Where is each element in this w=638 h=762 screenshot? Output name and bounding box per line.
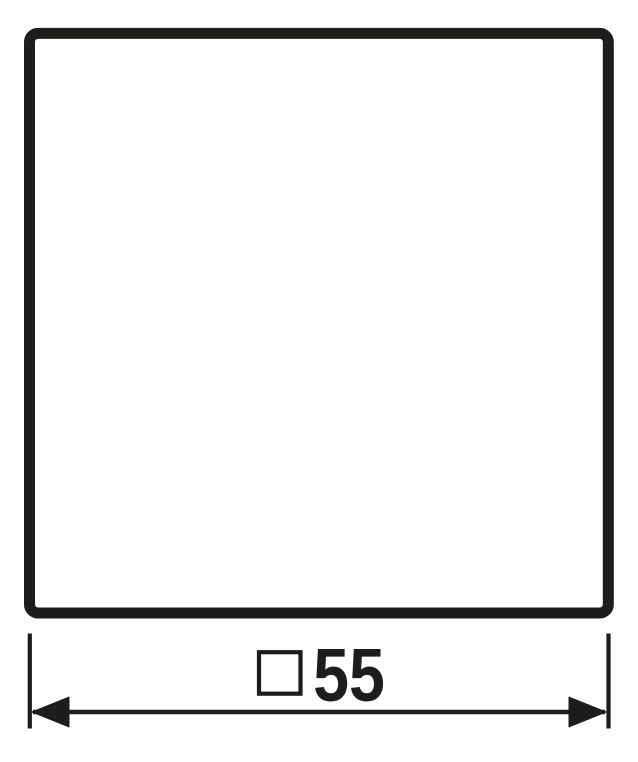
svg-text:55: 55: [313, 633, 385, 717]
